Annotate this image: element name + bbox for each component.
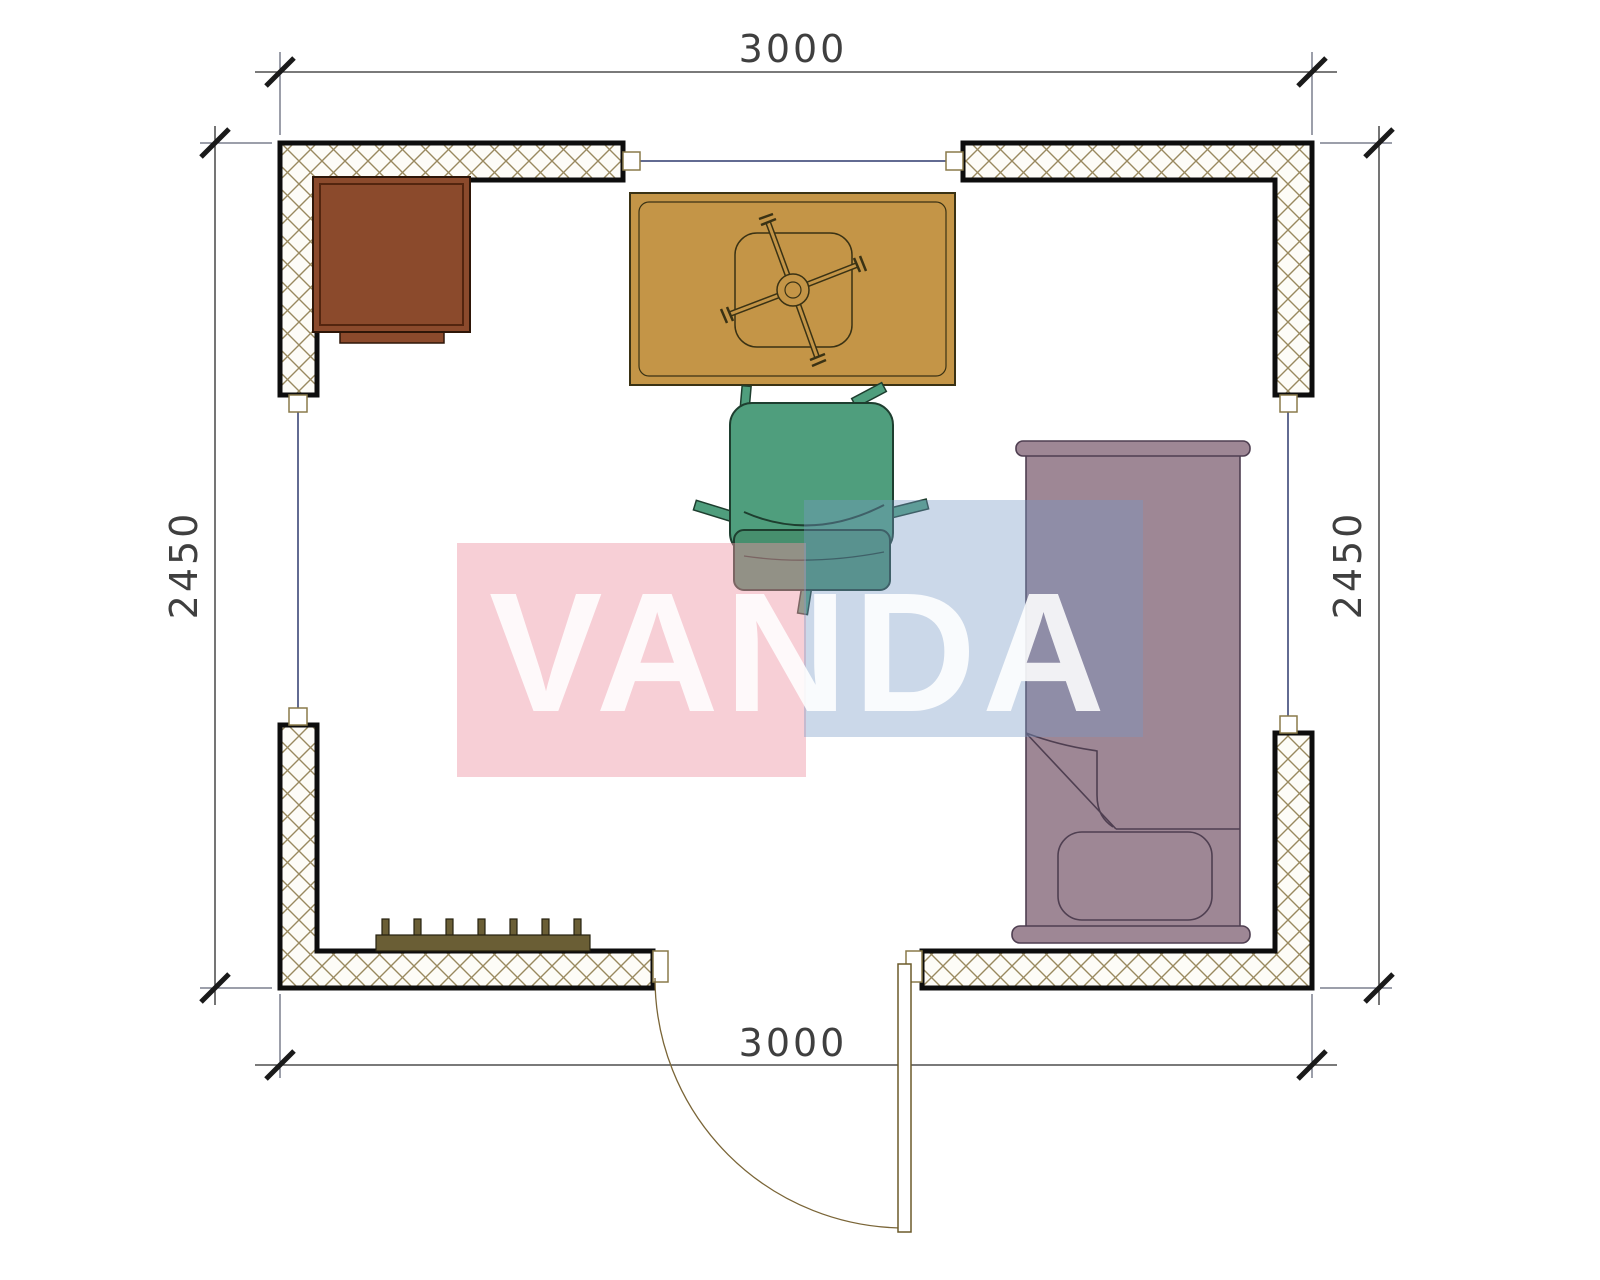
window-jamb xyxy=(623,152,640,170)
dimension-left: 2450 xyxy=(162,126,272,1005)
window-jamb xyxy=(946,152,963,170)
window-right xyxy=(1280,395,1297,733)
dimension-left-label: 2450 xyxy=(162,511,206,620)
door-jamb xyxy=(653,951,668,982)
dimension-top-label: 3000 xyxy=(739,27,848,71)
bed-footboard xyxy=(1012,926,1250,943)
wall-top-right xyxy=(963,143,1312,395)
window-jamb xyxy=(1280,395,1297,412)
watermark-text: VANDA xyxy=(489,568,1111,738)
dimension-top: 3000 xyxy=(255,27,1337,135)
door-swing-arc xyxy=(655,978,905,1228)
window-jamb xyxy=(289,395,307,412)
dimension-right: 2450 xyxy=(1320,126,1393,1005)
table xyxy=(630,193,955,385)
dimension-bottom: 3000 xyxy=(255,994,1337,1079)
door xyxy=(653,951,922,1232)
dimension-bottom-label: 3000 xyxy=(739,1021,848,1065)
radiator xyxy=(376,919,590,951)
window-jamb xyxy=(289,708,307,725)
dimension-right-label: 2450 xyxy=(1326,511,1370,620)
cabinet xyxy=(313,177,470,343)
bed-headboard xyxy=(1016,441,1250,456)
window-jamb xyxy=(1280,716,1297,733)
window-left xyxy=(289,395,307,725)
floor-plan: 3000 3000 2450 2450 xyxy=(0,0,1600,1280)
window-top xyxy=(623,152,963,170)
door-leaf xyxy=(898,964,911,1232)
